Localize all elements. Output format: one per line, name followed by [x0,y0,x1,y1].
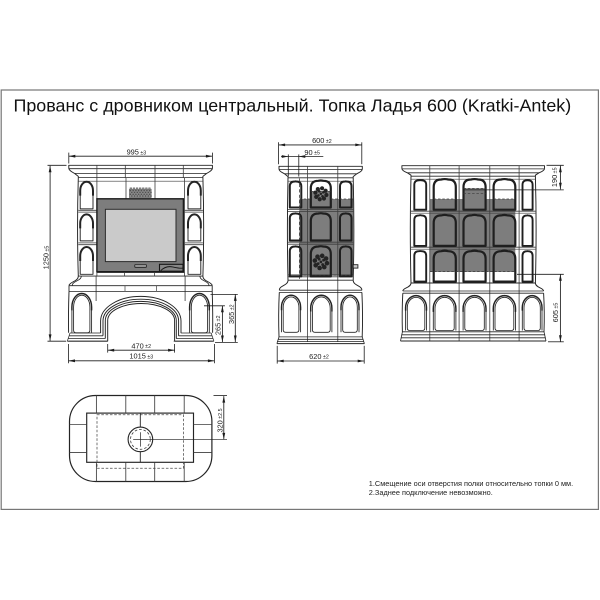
svg-text:2.Заднее подключение невозможн: 2.Заднее подключение невозможно. [369,488,493,497]
svg-text:Прованс с дровником центральны: Прованс с дровником центральный. Топка Л… [14,96,572,116]
svg-text:1.Смещение оси отверстия полки: 1.Смещение оси отверстия полки относител… [369,479,573,488]
